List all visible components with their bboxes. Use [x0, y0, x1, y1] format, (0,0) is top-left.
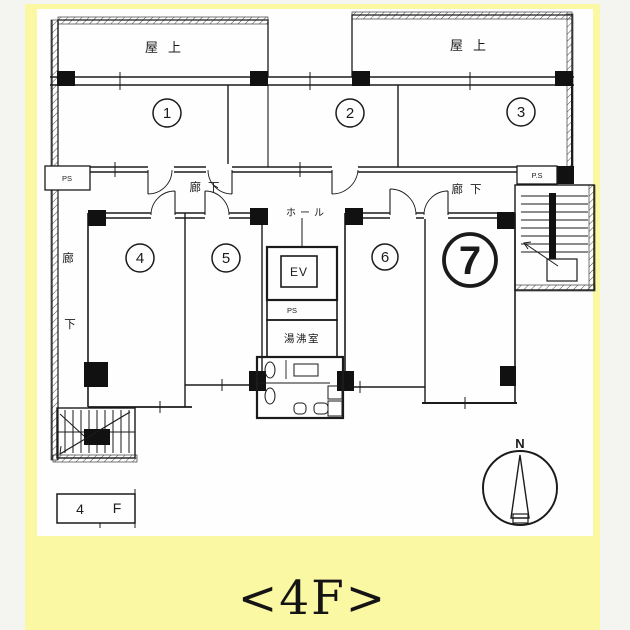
floorplan-drawing: 屋上 屋上 廊下 廊下 廊 下 ホール EV PS P.S PS 湯沸室 1 2…	[0, 0, 630, 630]
floor-box-number: 4	[76, 501, 84, 517]
room-2-number: 2	[346, 105, 354, 122]
hall-label: ホール	[286, 207, 328, 219]
floor-box-letter: F	[113, 500, 122, 516]
corridor-right-label: 廊下	[452, 182, 489, 196]
compass	[483, 451, 557, 525]
pipe-space-right-label: P.S	[531, 171, 542, 180]
staircase-right	[515, 185, 594, 290]
corridor-left-label-bottom: 下	[64, 319, 76, 331]
room-7-number: 7	[459, 239, 481, 283]
roof-left-label: 屋上	[145, 40, 191, 55]
room-3-number: 3	[517, 104, 525, 121]
room-6-number: 6	[381, 249, 389, 266]
compass-north-label: N	[515, 436, 524, 451]
floor-indicator-box	[57, 489, 135, 528]
corridor-top-label: 廊下	[190, 180, 227, 194]
staircase-bottom-left	[57, 408, 135, 458]
room-1-number: 1	[163, 105, 171, 122]
walls	[50, 15, 574, 460]
dimension-ticks	[115, 72, 470, 413]
pipe-space-center-label: PS	[287, 306, 297, 315]
elevator-label: EV	[290, 265, 308, 279]
pipe-space-top-left-label: PS	[62, 174, 72, 183]
toilet-area	[257, 357, 343, 418]
page: 屋上 屋上 廊下 廊下 廊 下 ホール EV PS P.S PS 湯沸室 1 2…	[0, 0, 630, 630]
roof-right-label: 屋上	[450, 38, 496, 53]
room-5-number: 5	[222, 250, 230, 267]
kitchenette-label: 湯沸室	[284, 332, 320, 345]
exterior-walls	[51, 12, 595, 462]
room-4-number: 4	[136, 250, 144, 267]
floor-caption: <4F>	[25, 571, 600, 626]
corridor-left-label-top: 廊	[62, 251, 74, 265]
